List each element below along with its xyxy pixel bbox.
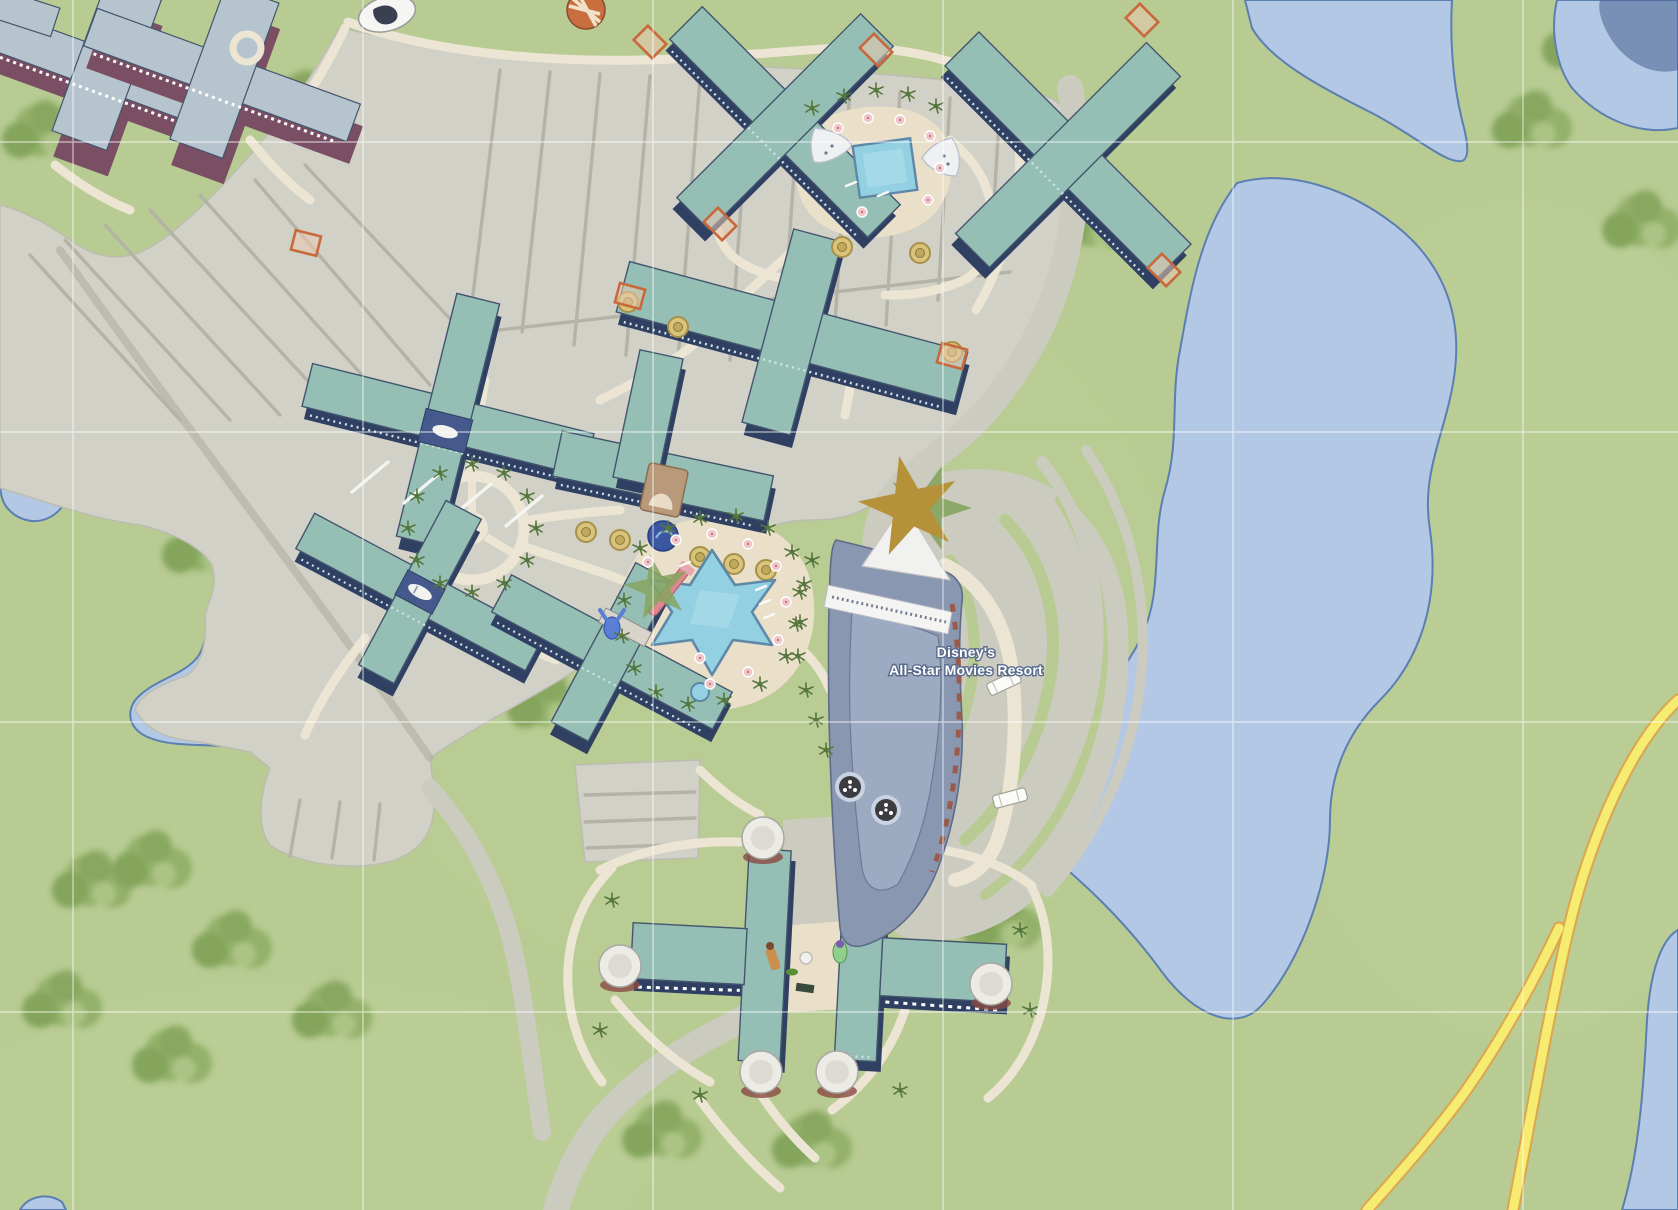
gold-star-icon [892, 488, 928, 523]
square-pool [853, 138, 918, 198]
film-reel-icon [835, 772, 865, 802]
resort-label-line2: All-Star Movies Resort [889, 662, 1043, 678]
map-artwork: Disney's All-Star Movies Resort [0, 0, 1678, 1210]
resort-label-line1: Disney's [937, 644, 996, 660]
resort-map-canvas[interactable]: Disney's All-Star Movies Resort [0, 0, 1678, 1210]
film-reel-icon [871, 795, 901, 825]
